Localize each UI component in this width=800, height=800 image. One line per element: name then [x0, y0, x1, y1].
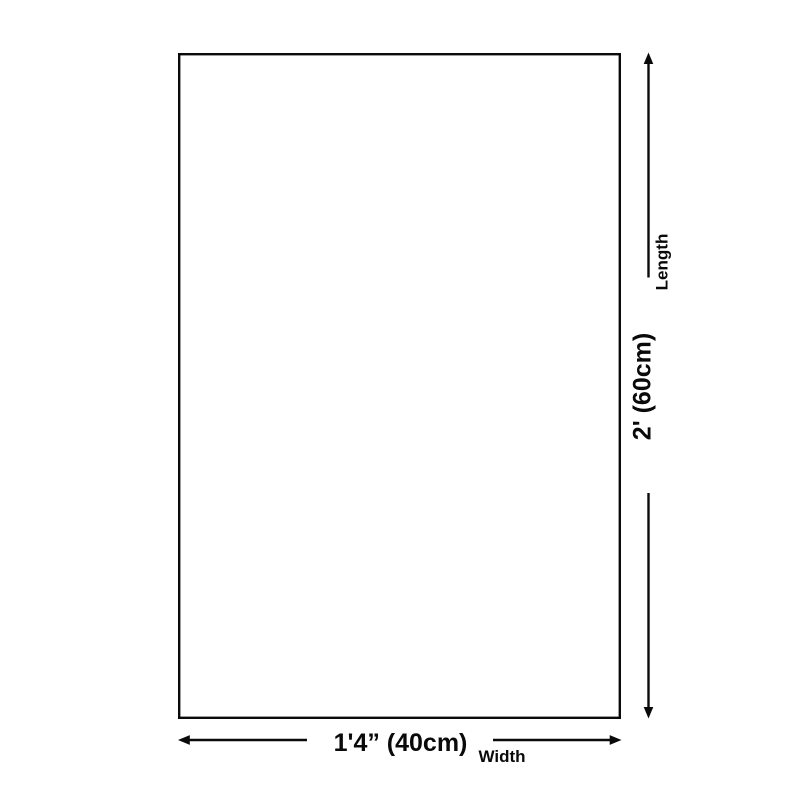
svg-text:Width: Width: [479, 747, 526, 766]
svg-text:1'4” (40cm): 1'4” (40cm): [334, 729, 468, 757]
svg-text:Length: Length: [653, 234, 672, 291]
svg-text:2' (60cm): 2' (60cm): [629, 333, 657, 440]
